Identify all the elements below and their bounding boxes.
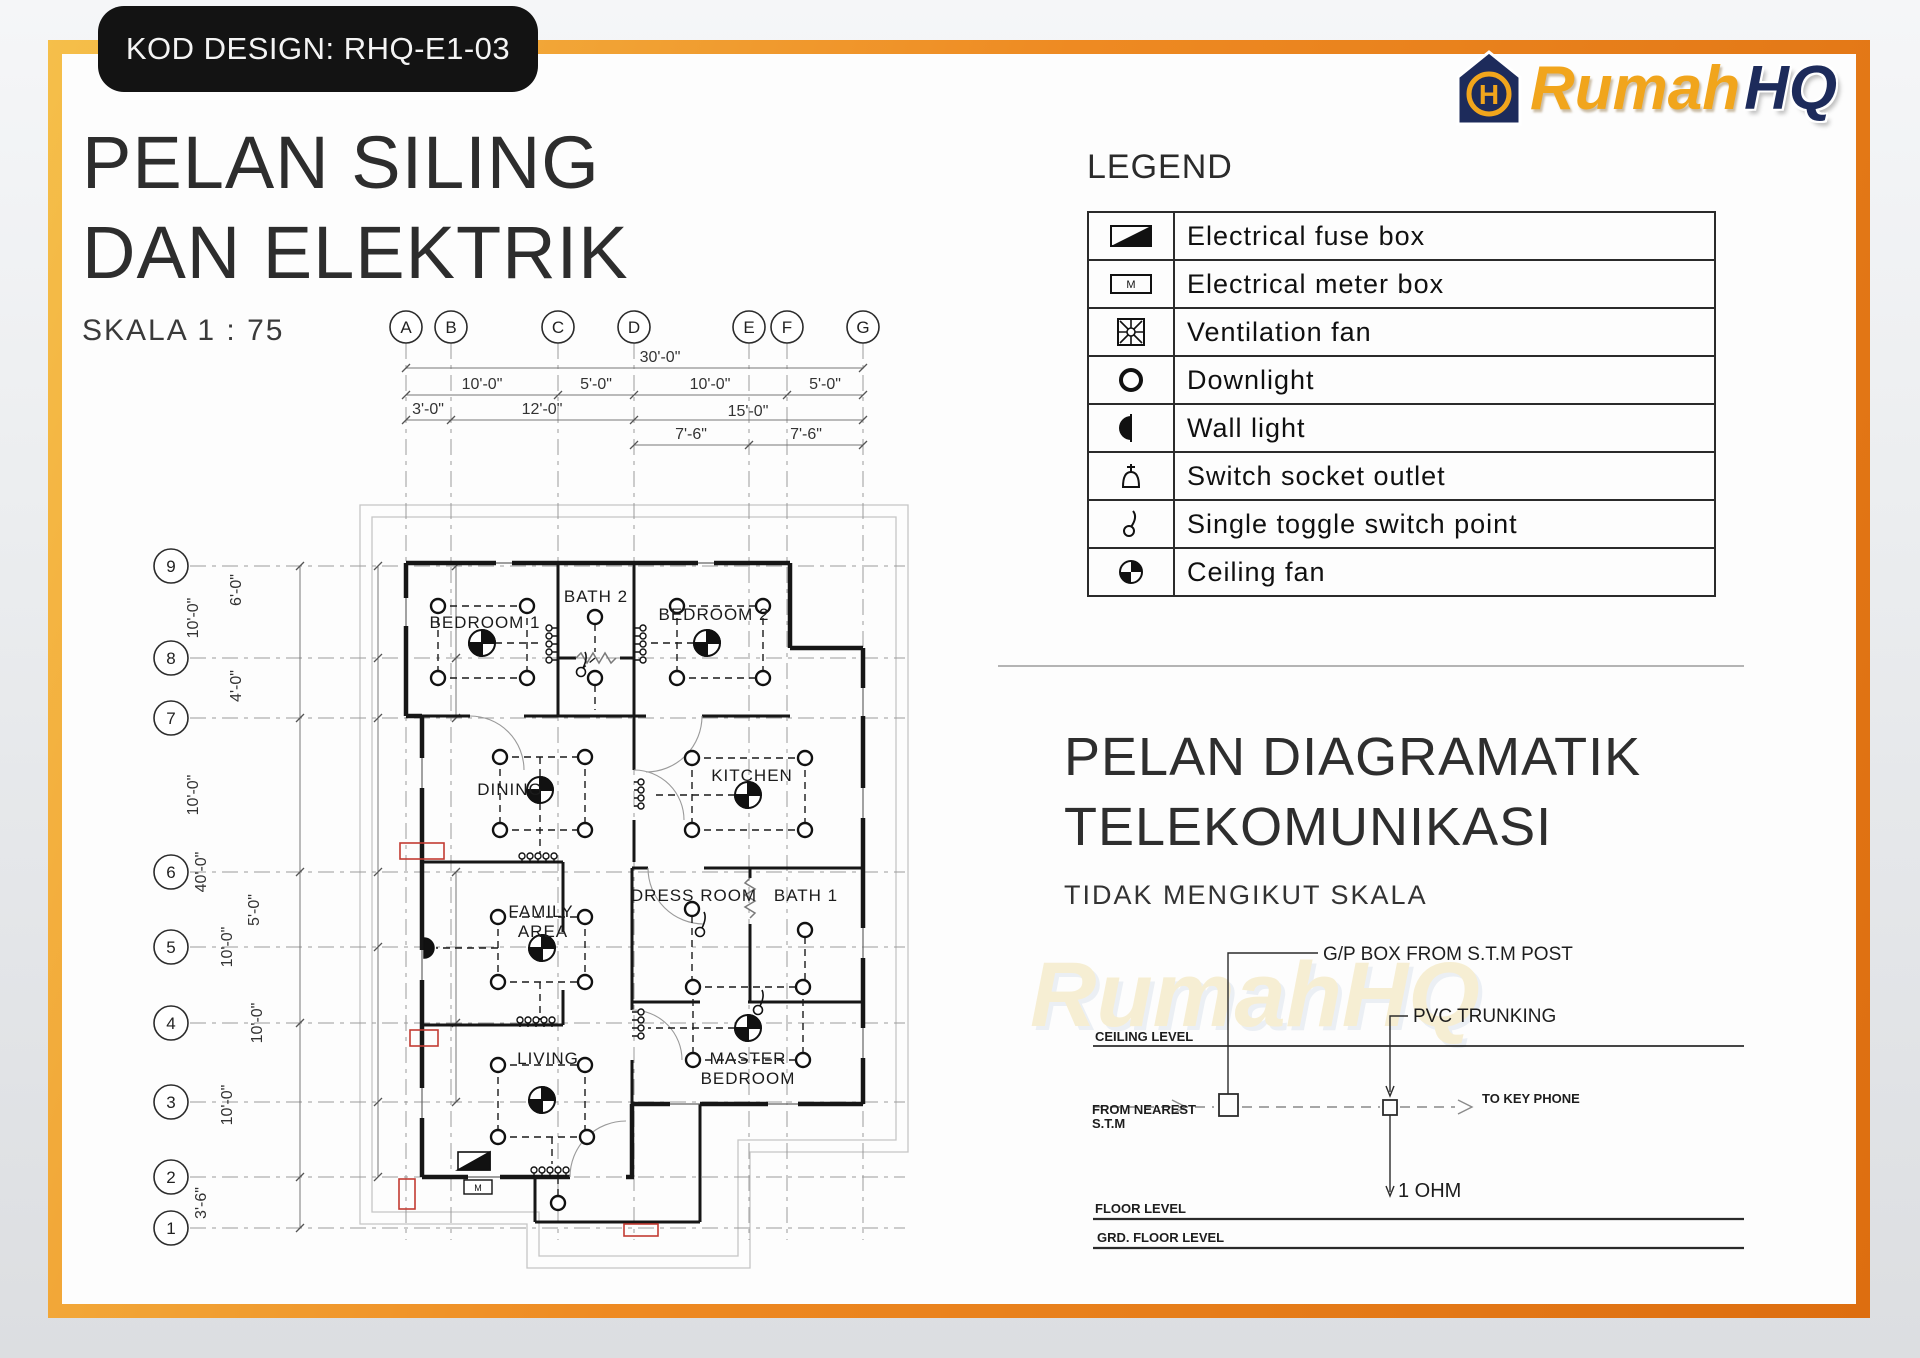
- single-toggle-switch-icon: [1089, 501, 1175, 547]
- brand-name-primary: Rumah: [1530, 53, 1740, 124]
- legend-label: Single toggle switch point: [1175, 501, 1518, 547]
- downlight-icon: [491, 1130, 505, 1144]
- brand-logo: H Rumah HQ: [1456, 50, 1837, 126]
- downlight-icon: [588, 671, 602, 685]
- dim-label: 7'-6": [675, 426, 707, 443]
- downlight-icon: [1089, 357, 1175, 403]
- grid-row-label: 9: [166, 557, 175, 576]
- downlight-icon: [796, 980, 810, 994]
- ceiling-fan-icon: [735, 782, 761, 808]
- downlight-icon: [578, 1058, 592, 1072]
- downlight-icon: [686, 1053, 700, 1067]
- downlight-icon: [685, 751, 699, 765]
- ohm-drop: [1386, 1115, 1394, 1196]
- legend: LEGEND Electrical fuse box M Electrical …: [1087, 148, 1716, 597]
- switch-cluster: [634, 625, 646, 663]
- wall-light-icon: [424, 938, 434, 958]
- dim-label: 5'-0": [246, 894, 263, 926]
- pvc-label: PVC TRUNKING: [1413, 1006, 1556, 1027]
- room-label-bath2: BATH 2: [564, 587, 628, 606]
- dim-label: 5'-0": [809, 376, 841, 393]
- house-icon: H: [1456, 50, 1522, 126]
- from-nearest-label: FROM NEAREST: [1092, 1102, 1196, 1117]
- legend-row: Ventilation fan: [1089, 307, 1714, 355]
- page-title-block: PELAN SILING DAN ELEKTRIK SKALA 1 : 75: [82, 118, 629, 348]
- legend-label: Ventilation fan: [1175, 309, 1372, 355]
- downlight-icon: [491, 1058, 505, 1072]
- dimension-labels-left: 10'-0" 6'-0" 4'-0" 10'-0" 40'-0" 5'-0" 1…: [185, 574, 266, 1219]
- dim-label: 30'-0": [640, 349, 681, 366]
- downlight-icon: [431, 671, 445, 685]
- dim-label: 7'-6": [790, 426, 822, 443]
- legend-row: Switch socket outlet: [1089, 451, 1714, 499]
- dim-label: 6'-0": [228, 574, 245, 606]
- grd-floor-level-label: GRD. FLOOR LEVEL: [1097, 1230, 1224, 1245]
- room-label-kitchen: KITCHEN: [711, 766, 793, 785]
- dim-label: 5'-0": [580, 376, 612, 393]
- ohm-label: 1 OHM: [1398, 1180, 1461, 1202]
- downlight-icon: [578, 910, 592, 924]
- design-code-badge: KOD DESIGN: RHQ-E1-03: [98, 6, 538, 92]
- grid-row-label: 4: [166, 1014, 175, 1033]
- room-label-bedroom2: BEDROOM 2: [658, 605, 769, 624]
- trunking-box: [1383, 1100, 1397, 1115]
- page-title-line2: DAN ELEKTRIK: [82, 208, 629, 298]
- grid-column-label: E: [743, 318, 754, 337]
- legend-row: Downlight: [1089, 355, 1714, 403]
- downlight-icon: [798, 751, 812, 765]
- ceiling-fan-icon: [1089, 549, 1175, 595]
- grid-row-label: 7: [166, 709, 175, 728]
- downlight-icon: [520, 599, 534, 613]
- ceiling-level-label: CEILING LEVEL: [1095, 1029, 1193, 1044]
- dim-label: 10'-0": [219, 1085, 236, 1126]
- downlight-icon: [685, 823, 699, 837]
- grid-column-label: G: [856, 318, 869, 337]
- downlight-icon: [756, 671, 770, 685]
- brand-name-secondary: HQ: [1744, 53, 1837, 124]
- downlight-icon: [578, 750, 592, 764]
- legend-title: LEGEND: [1087, 148, 1716, 187]
- ceiling-fan-icon: [469, 630, 495, 656]
- switch-cluster: [546, 625, 558, 663]
- downlight-icon: [798, 923, 812, 937]
- legend-row: Electrical fuse box: [1089, 213, 1714, 259]
- grid-row-label: 5: [166, 938, 175, 957]
- legend-row: Ceiling fan: [1089, 547, 1714, 595]
- dim-label: 3'-6": [193, 1187, 210, 1219]
- dim-label: 10'-0": [185, 775, 202, 816]
- telecom-title-block: PELAN DIAGRAMATIK TELEKOMUNIKASI TIDAK M…: [1064, 722, 1641, 911]
- telecom-title-line1: PELAN DIAGRAMATIK: [1064, 722, 1641, 792]
- meter-box-icon: M: [464, 1180, 492, 1194]
- grid-row-label: 8: [166, 649, 175, 668]
- grid-row-label: 3: [166, 1093, 175, 1112]
- switch-cluster: [634, 779, 644, 809]
- gp-box: [1219, 1094, 1238, 1116]
- electrical-meter-box-icon: M: [1089, 261, 1175, 307]
- design-code-label: KOD DESIGN: RHQ-E1-03: [126, 31, 510, 67]
- grid-column-label: F: [782, 318, 792, 337]
- legend-label: Downlight: [1175, 357, 1315, 403]
- grid-bubble-numbers: 9 8 7 6 5 4 3 2 1: [166, 557, 175, 1238]
- downlight-icon: [491, 910, 505, 924]
- legend-label: Switch socket outlet: [1175, 453, 1446, 499]
- dim-label: 10'-0": [690, 376, 731, 393]
- dimension-labels-top: 30'-0" 10'-0" 5'-0" 10'-0" 5'-0" 3'-0" 1…: [412, 349, 841, 443]
- downlight-icon: [493, 750, 507, 764]
- dim-label: 12'-0": [522, 401, 563, 418]
- downlight-icon: [520, 671, 534, 685]
- arrow-right-2: [1458, 1100, 1472, 1114]
- legend-label: Electrical fuse box: [1175, 213, 1425, 259]
- downlight-icon: [670, 671, 684, 685]
- ceiling-fan-icon: [735, 1015, 761, 1041]
- grid-row-label: 6: [166, 863, 175, 882]
- wall-light-icon: [1089, 405, 1175, 451]
- dim-label: 40'-0": [193, 852, 210, 893]
- grid-row-label: 1: [166, 1219, 175, 1238]
- room-label-master: MASTER: [710, 1049, 787, 1068]
- squiggle-doors: [576, 653, 755, 918]
- room-label-dining: DINING: [477, 780, 543, 799]
- downlight-icon: [796, 1053, 810, 1067]
- room-label-master-bedroom: BEDROOM: [701, 1069, 796, 1088]
- dim-label: 3'-0": [412, 401, 444, 418]
- legend-table: Electrical fuse box M Electrical meter b…: [1087, 211, 1716, 597]
- gp-box-label: G/P BOX FROM S.T.M POST: [1323, 944, 1573, 965]
- downlight-icon: [493, 823, 507, 837]
- downlight-icon: [588, 610, 602, 624]
- downlight-icon: [798, 823, 812, 837]
- dim-label: 15'-0": [728, 403, 769, 420]
- legend-label: Wall light: [1175, 405, 1306, 451]
- ventilation-fan-icon: [1089, 309, 1175, 355]
- room-label-bedroom1: BEDROOM 1: [429, 613, 540, 632]
- legend-label: Ceiling fan: [1175, 549, 1326, 595]
- room-label-family: FAMILY: [508, 902, 573, 921]
- dim-label: 10'-0": [219, 927, 236, 968]
- legend-label: Electrical meter box: [1175, 261, 1444, 307]
- telecom-note: TIDAK MENGIKUT SKALA: [1064, 880, 1641, 911]
- page-title-line1: PELAN SILING: [82, 118, 629, 208]
- room-label-area: AREA: [518, 922, 568, 941]
- ceiling-fan-icon: [529, 1087, 555, 1113]
- switch-socket-outlet-icon: [1089, 453, 1175, 499]
- stm-label: S.T.M: [1092, 1116, 1125, 1131]
- scale-label: SKALA 1 : 75: [82, 314, 629, 348]
- dim-label: 4'-0": [228, 670, 245, 702]
- electrical-fuse-box-icon: [1089, 213, 1175, 259]
- downlight-icon: [580, 1130, 594, 1144]
- dim-label: 10'-0": [185, 598, 202, 639]
- grid-column-label: D: [628, 318, 640, 337]
- downlight-icon: [431, 599, 445, 613]
- dim-label: 10'-0": [249, 1003, 266, 1044]
- telecom-title-line2: TELEKOMUNIKASI: [1064, 792, 1641, 862]
- legend-row: Wall light: [1089, 403, 1714, 451]
- room-label-bath1: BATH 1: [774, 886, 838, 905]
- downlight-icon: [686, 980, 700, 994]
- room-label-dress-room: DRESS ROOM: [631, 886, 757, 905]
- svg-text:M: M: [1126, 279, 1135, 291]
- meter-letter: M: [474, 1183, 482, 1193]
- downlight-icon: [578, 823, 592, 837]
- legend-row: Single toggle switch point: [1089, 499, 1714, 547]
- to-key-phone-label: TO KEY PHONE: [1482, 1091, 1580, 1106]
- floor-level-label: FLOOR LEVEL: [1095, 1201, 1186, 1216]
- grid-row-label: 2: [166, 1168, 175, 1187]
- room-label-living: LIVING: [517, 1049, 579, 1068]
- dim-label: 10'-0": [462, 376, 503, 393]
- downlight-icon: [578, 975, 592, 989]
- legend-row: M Electrical meter box: [1089, 259, 1714, 307]
- fuse-box-icon: [458, 1152, 490, 1170]
- toggle-switches: [577, 652, 764, 1015]
- logo-monogram: H: [1479, 79, 1499, 110]
- downlight-icon: [551, 1196, 565, 1210]
- downlight-icon: [491, 975, 505, 989]
- ceiling-fan-icon: [694, 630, 720, 656]
